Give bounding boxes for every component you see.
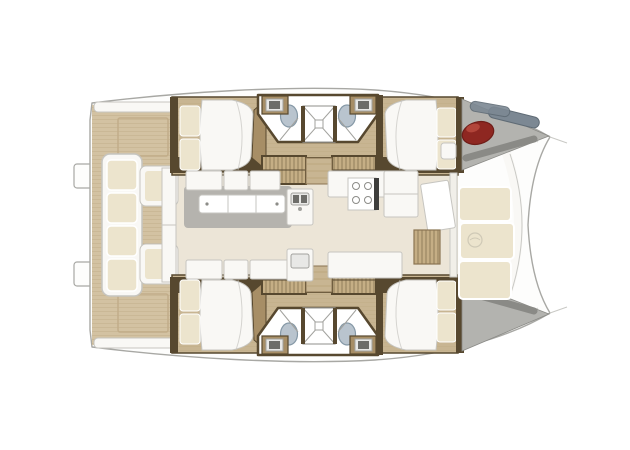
lounge-cushions [459,187,514,299]
head-compartment [258,95,378,142]
shower-wall [301,106,305,142]
washbasin-bowl [269,101,280,109]
galley-stove [348,178,376,210]
washbasin-bowl [358,101,369,109]
sink-bowl [293,195,299,203]
floor-plan-canvas [0,0,630,450]
bench-cushion [107,160,137,190]
forward-entry-mat [414,230,440,264]
lounge-cushion [459,187,511,221]
bed-pillow [437,108,456,137]
table-fitting [275,202,278,205]
sofa-cushion [186,171,222,190]
cockpit-top-rail [94,102,174,112]
saloon-sofa-aft [186,260,292,279]
bed-duvet [200,100,253,170]
bench-cushion [107,193,137,223]
sink-faucet [298,207,302,211]
bench-cushion [107,259,137,291]
cockpit-bench-cushions [107,160,137,291]
bed-pillow [180,139,200,170]
saloon-table [199,195,285,213]
sofa-cushion [224,171,248,190]
catamaran-floor-plan [0,0,630,450]
cockpit-bottom-rail [94,338,174,348]
table-fitting [205,202,208,205]
counter-inset [291,254,309,268]
sofa-cushion [250,171,280,190]
bed-pillow [180,106,200,136]
helm-seat-cushion [441,143,456,159]
cabin-partition-wall [376,95,383,157]
bench-cushion [107,226,137,256]
sofa-cushion [250,260,292,279]
stove-panel [374,178,379,210]
lounge-cushion [459,261,511,299]
cabin-head-wall [170,97,178,173]
saloon-sofa-forward [186,171,280,190]
sofa-cushion [186,260,222,279]
sofa-cushion [224,260,248,279]
shower-wall [333,106,337,142]
sink-bowl [301,195,307,203]
bed-duvet [385,100,438,170]
galley-counter-starboard [328,252,402,278]
shower-drain [315,120,323,128]
forward-cockpit-lounge [459,187,514,299]
